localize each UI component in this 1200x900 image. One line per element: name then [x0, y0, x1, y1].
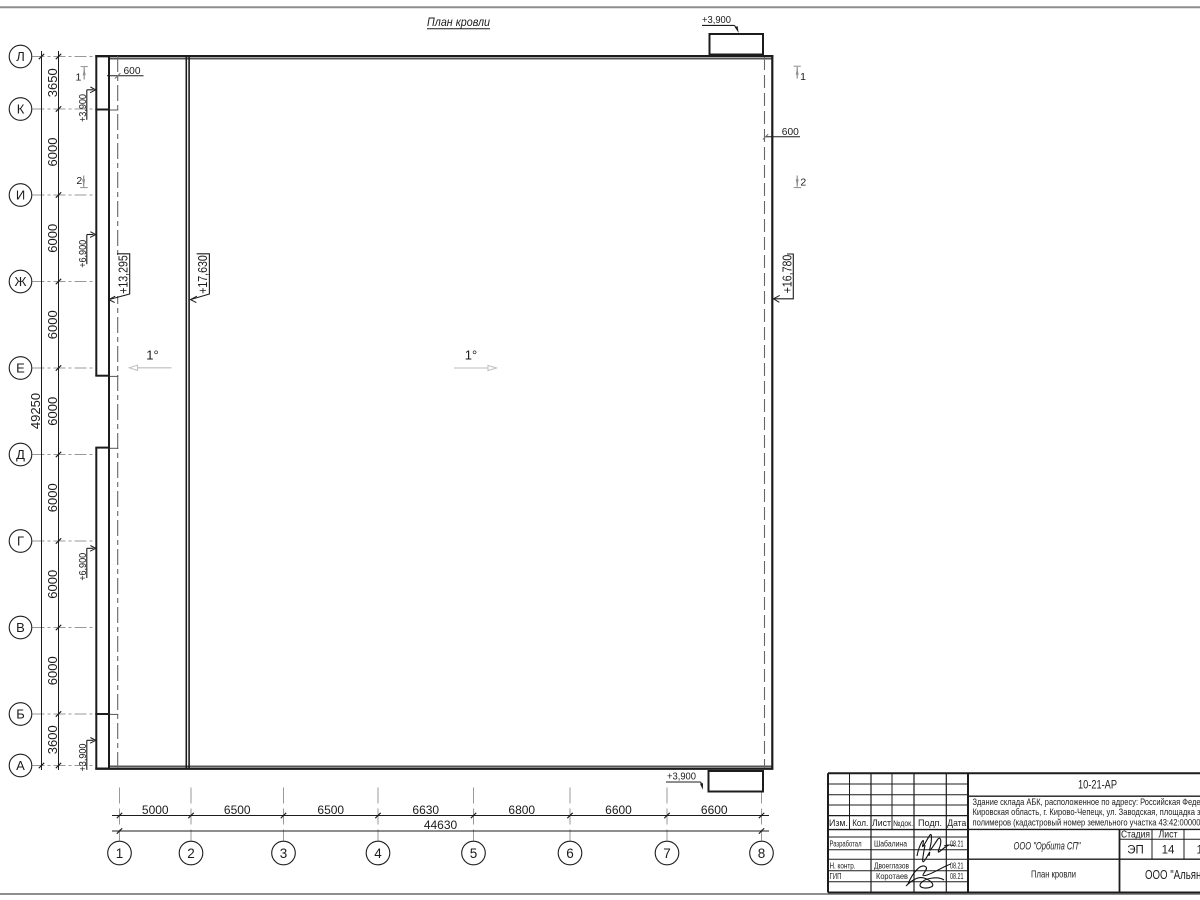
svg-text:49250: 49250 — [28, 393, 43, 429]
svg-text:16: 16 — [1197, 844, 1200, 856]
svg-text:3: 3 — [280, 846, 288, 861]
svg-text:И: И — [16, 188, 25, 203]
svg-text:ООО "Альянс Про": ООО "Альянс Про" — [1145, 868, 1200, 882]
svg-text:2: 2 — [187, 846, 195, 861]
svg-text:44630: 44630 — [424, 818, 458, 832]
svg-text:+6,900: +6,900 — [77, 553, 89, 581]
svg-text:В: В — [16, 620, 25, 635]
svg-text:+13,295: +13,295 — [116, 255, 130, 294]
svg-text:+3,900: +3,900 — [702, 14, 731, 26]
svg-text:Лист: Лист — [1159, 829, 1178, 841]
svg-text:Стадия: Стадия — [1121, 829, 1150, 841]
svg-text:Кол.: Кол. — [852, 818, 868, 829]
svg-text:Дата: Дата — [947, 818, 967, 829]
svg-text:Л: Л — [16, 49, 25, 64]
svg-text:6000: 6000 — [45, 397, 60, 426]
svg-text:Здание склада АБК, расположенн: Здание склада АБК, расположенное по адре… — [973, 797, 1200, 807]
svg-text:08.21: 08.21 — [950, 840, 964, 849]
svg-text:7: 7 — [663, 846, 671, 861]
svg-text:6630: 6630 — [412, 803, 439, 817]
svg-text:5000: 5000 — [142, 803, 169, 817]
svg-text:Разработал: Разработал — [830, 840, 862, 849]
svg-text:6000: 6000 — [45, 310, 60, 339]
svg-text:Лист: Лист — [872, 818, 892, 829]
svg-text:А: А — [16, 758, 25, 773]
svg-text:6000: 6000 — [45, 224, 60, 253]
svg-text:3650: 3650 — [45, 68, 60, 97]
svg-text:Г: Г — [17, 534, 24, 549]
svg-text:Б: Б — [16, 707, 25, 722]
svg-text:600: 600 — [124, 66, 141, 77]
svg-text:2: 2 — [800, 176, 806, 188]
svg-text:6500: 6500 — [317, 803, 344, 817]
svg-text:1: 1 — [800, 71, 806, 83]
svg-text:+16,780: +16,780 — [781, 255, 795, 294]
svg-text:4: 4 — [374, 846, 382, 861]
svg-text:10-21-АР: 10-21-АР — [1078, 778, 1117, 792]
svg-text:6000: 6000 — [45, 483, 60, 512]
svg-text:2: 2 — [76, 175, 82, 187]
svg-text:6600: 6600 — [605, 803, 632, 817]
svg-text:Н. контр.: Н. контр. — [830, 862, 856, 871]
svg-text:1°: 1° — [465, 348, 477, 363]
svg-text:ООО "Орбита СП": ООО "Орбита СП" — [1014, 840, 1082, 852]
svg-text:ЭП: ЭП — [1127, 844, 1144, 856]
svg-text:6600: 6600 — [701, 803, 728, 817]
svg-text:+3,900: +3,900 — [667, 771, 696, 783]
svg-text:+17,630: +17,630 — [196, 255, 210, 294]
svg-text:6000: 6000 — [45, 570, 60, 599]
svg-text:Шабалина: Шабалина — [874, 840, 907, 849]
svg-text:Е: Е — [16, 361, 25, 376]
svg-text:полимеров (кадастровый номер з: полимеров (кадастровый номер земельного … — [973, 818, 1200, 828]
svg-text:+3,900: +3,900 — [77, 743, 89, 771]
svg-text:Подп.: Подп. — [918, 818, 942, 829]
svg-text:План кровли: План кровли — [1031, 869, 1076, 881]
svg-text:Д: Д — [16, 447, 25, 462]
svg-text:Кировская область, г. Кирово-Ч: Кировская область, г. Кирово-Чепецк, ул.… — [973, 807, 1200, 817]
svg-text:Ж: Ж — [14, 274, 26, 289]
svg-text:6: 6 — [566, 846, 574, 861]
svg-text:1°: 1° — [146, 348, 158, 363]
svg-text:Изм.: Изм. — [829, 818, 848, 829]
svg-text:№док.: №док. — [893, 819, 913, 828]
svg-text:1: 1 — [75, 71, 81, 83]
svg-text:5: 5 — [470, 846, 478, 861]
svg-text:План кровли: План кровли — [427, 17, 491, 29]
svg-text:6000: 6000 — [45, 138, 60, 167]
svg-text:6800: 6800 — [508, 803, 535, 817]
svg-text:К: К — [17, 102, 25, 117]
svg-text:Двоеглазов: Двоеглазов — [874, 862, 909, 871]
svg-text:6000: 6000 — [45, 656, 60, 685]
svg-text:3600: 3600 — [45, 725, 60, 754]
svg-text:6500: 6500 — [224, 803, 251, 817]
svg-text:1: 1 — [116, 846, 124, 861]
svg-text:08.21: 08.21 — [950, 872, 964, 881]
svg-text:600: 600 — [782, 127, 799, 138]
svg-text:ГИП: ГИП — [830, 872, 842, 881]
svg-text:14: 14 — [1162, 844, 1175, 856]
svg-text:08.21: 08.21 — [950, 862, 964, 871]
svg-text:+3,900: +3,900 — [77, 94, 89, 122]
svg-text:8: 8 — [758, 846, 766, 861]
svg-text:+6,900: +6,900 — [77, 240, 89, 268]
svg-text:Коротаев: Коротаев — [876, 872, 908, 881]
